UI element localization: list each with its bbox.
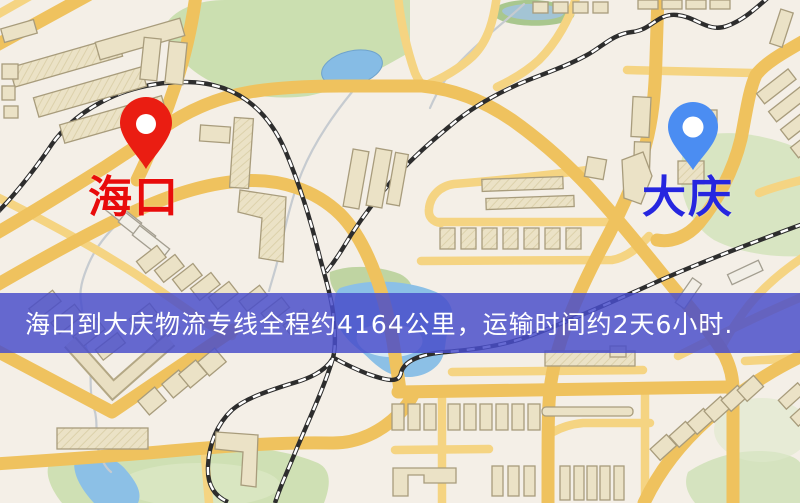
destination-pin-hole xyxy=(683,117,704,138)
route-info-banner: 海口到大庆物流专线全程约4164公里，运输时间约2天6小时. xyxy=(0,293,800,353)
map-canvas[interactable]: 海口 大庆 海口到大庆物流专线全程约4164公里，运输时间约2天6小时. xyxy=(0,0,800,503)
origin-label: 海口 xyxy=(88,176,180,220)
route-info-text: 海口到大庆物流专线全程约4164公里，运输时间约2天6小时. xyxy=(25,305,733,341)
origin-pin-hole xyxy=(136,114,156,134)
map-art xyxy=(0,0,800,503)
destination-label: 大庆 xyxy=(642,176,734,220)
